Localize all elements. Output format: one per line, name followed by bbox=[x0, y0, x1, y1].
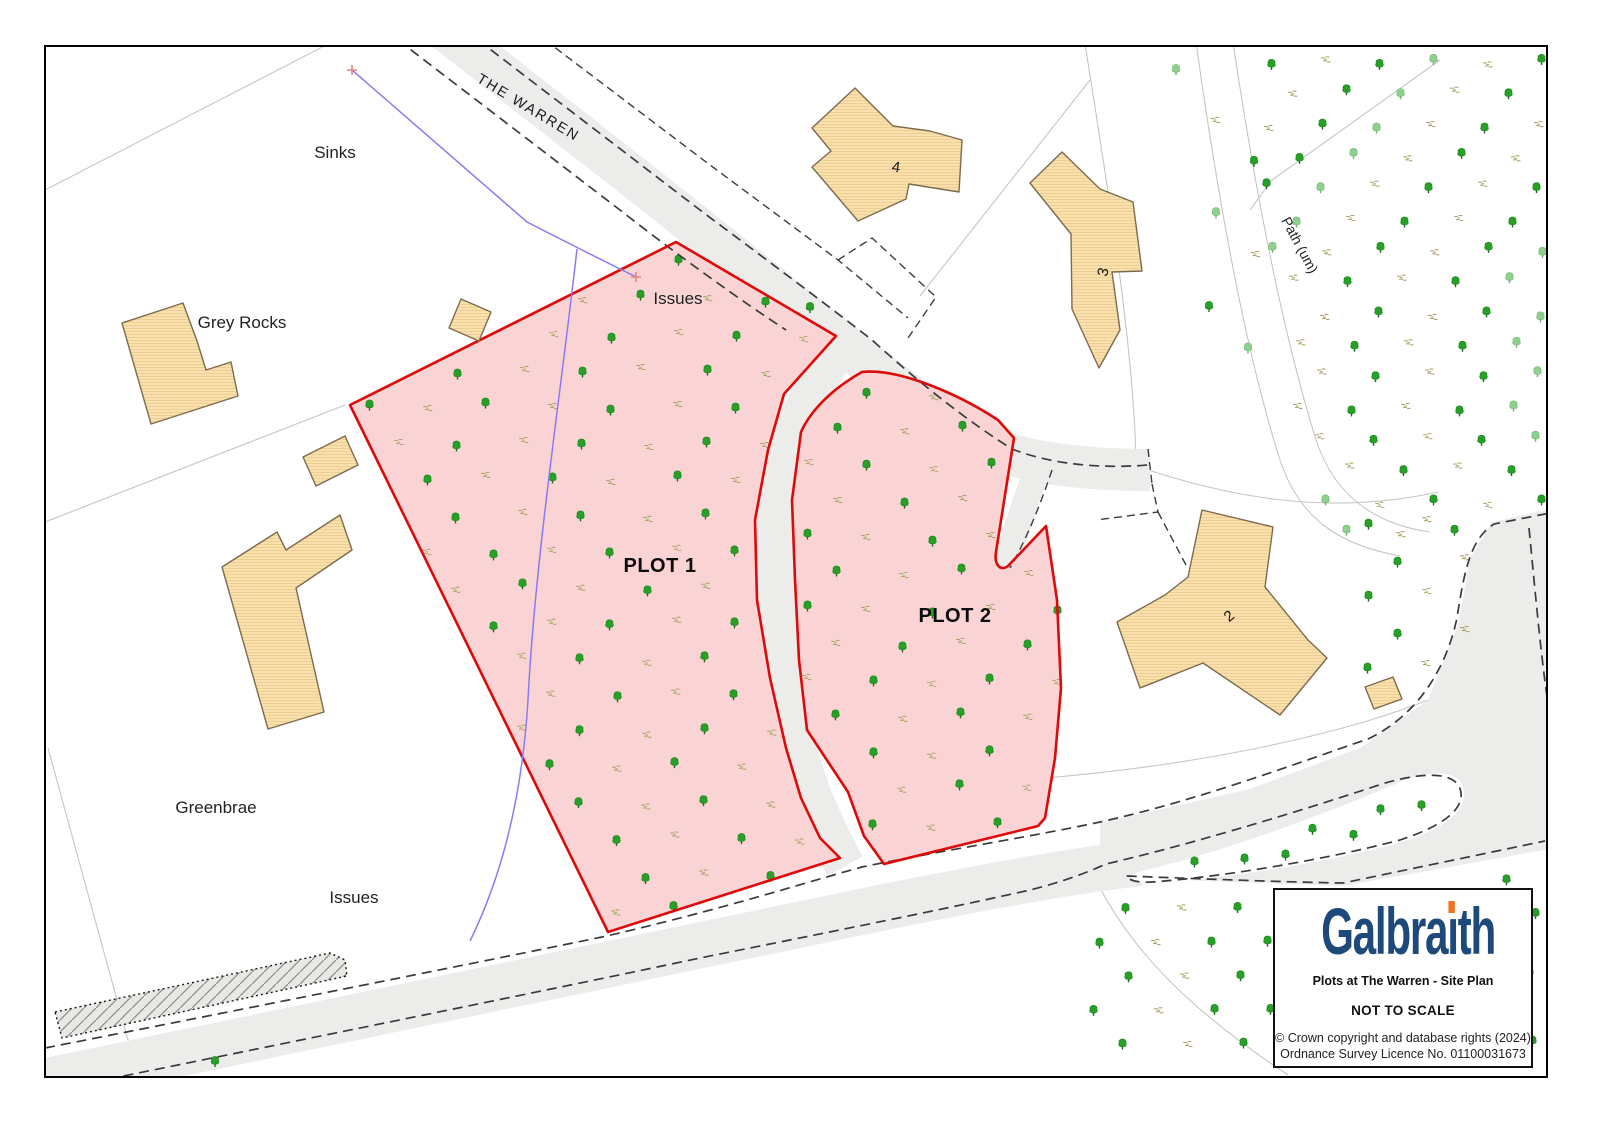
brand-i-dot bbox=[1449, 901, 1455, 913]
label-grey-rocks: Grey Rocks bbox=[198, 313, 287, 332]
scale-note: NOT TO SCALE bbox=[1275, 1003, 1531, 1018]
label-plot1: PLOT 1 bbox=[623, 555, 696, 577]
label-greenbrae: Greenbrae bbox=[175, 798, 256, 817]
copyright-line-2: Ordnance Survey Licence No. 01100031673 bbox=[1275, 1047, 1531, 1061]
brand-logo: Galbraıth bbox=[1321, 898, 1485, 964]
info-box: Galbraıth Plots at The Warren - Site Pla… bbox=[1273, 888, 1533, 1068]
label-issues-bottom: Issues bbox=[329, 888, 378, 907]
plan-title: Plots at The Warren - Site Plan bbox=[1275, 974, 1531, 988]
copyright-line-1: © Crown copyright and database rights (2… bbox=[1275, 1031, 1531, 1045]
label-plot2: PLOT 2 bbox=[918, 605, 991, 627]
label-sinks: Sinks bbox=[314, 143, 356, 162]
label-issues-top: Issues bbox=[653, 289, 702, 308]
